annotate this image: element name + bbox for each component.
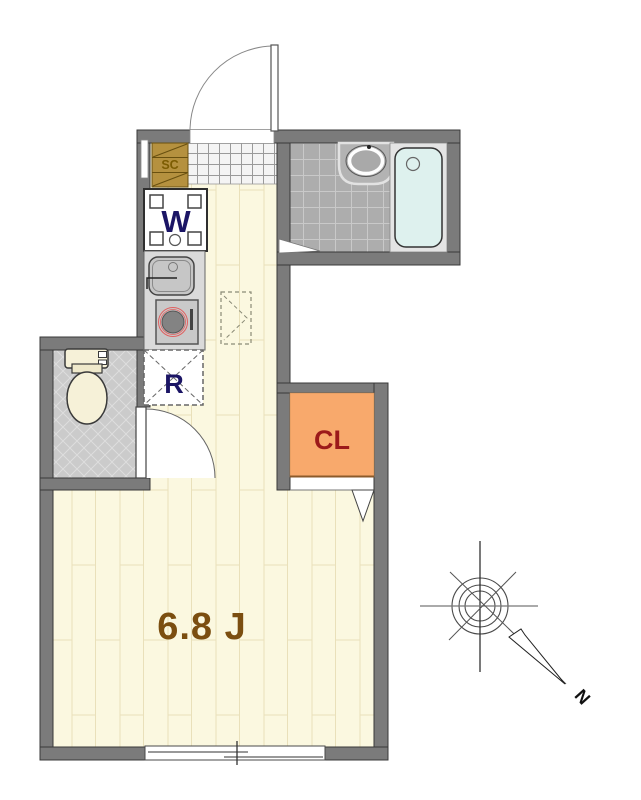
entrance-opening xyxy=(190,130,274,144)
floorplan-drawing: SC W R xyxy=(0,0,641,800)
refrigerator-label: R xyxy=(164,369,184,399)
slit-window-left xyxy=(141,140,148,178)
wall-toilet-top xyxy=(40,337,150,350)
kitchen-counter xyxy=(144,251,205,350)
toilet-door-leaf xyxy=(136,407,146,478)
wall-right xyxy=(374,383,388,760)
wall-bath-left xyxy=(277,143,290,252)
bathtub xyxy=(390,143,447,252)
sink-faucet-icon xyxy=(367,145,371,149)
washing-machine-label: W xyxy=(161,204,191,239)
shoe-cabinet-label: SC xyxy=(161,158,178,172)
wall-closet-top xyxy=(277,383,387,393)
closet-label: CL xyxy=(314,425,350,455)
wall-top xyxy=(137,130,460,143)
compass-needle xyxy=(509,629,565,684)
wall-bath-right xyxy=(447,143,460,252)
entrance-door xyxy=(190,45,278,131)
wall-left xyxy=(40,350,53,760)
compass: N xyxy=(420,541,594,709)
entrance-door-arc xyxy=(190,46,272,130)
kitchen-sink xyxy=(147,257,194,295)
entrance-door-leaf xyxy=(271,45,278,131)
toilet xyxy=(65,349,108,424)
north-label: N xyxy=(571,685,595,708)
bathroom-sink xyxy=(339,143,393,184)
wall-toilet-bottom xyxy=(40,478,150,490)
stove xyxy=(156,300,198,344)
room-size-label: 6.8 J xyxy=(157,606,247,648)
genkan-tile xyxy=(188,143,277,184)
shoe-cabinet: SC xyxy=(152,143,188,187)
washing-machine-space: W xyxy=(144,189,207,251)
wall-mid-column xyxy=(277,265,290,490)
wall-bath-bottom xyxy=(277,252,460,265)
refrigerator-space: R xyxy=(144,350,203,405)
floorplan-page: SC W R xyxy=(0,0,641,800)
